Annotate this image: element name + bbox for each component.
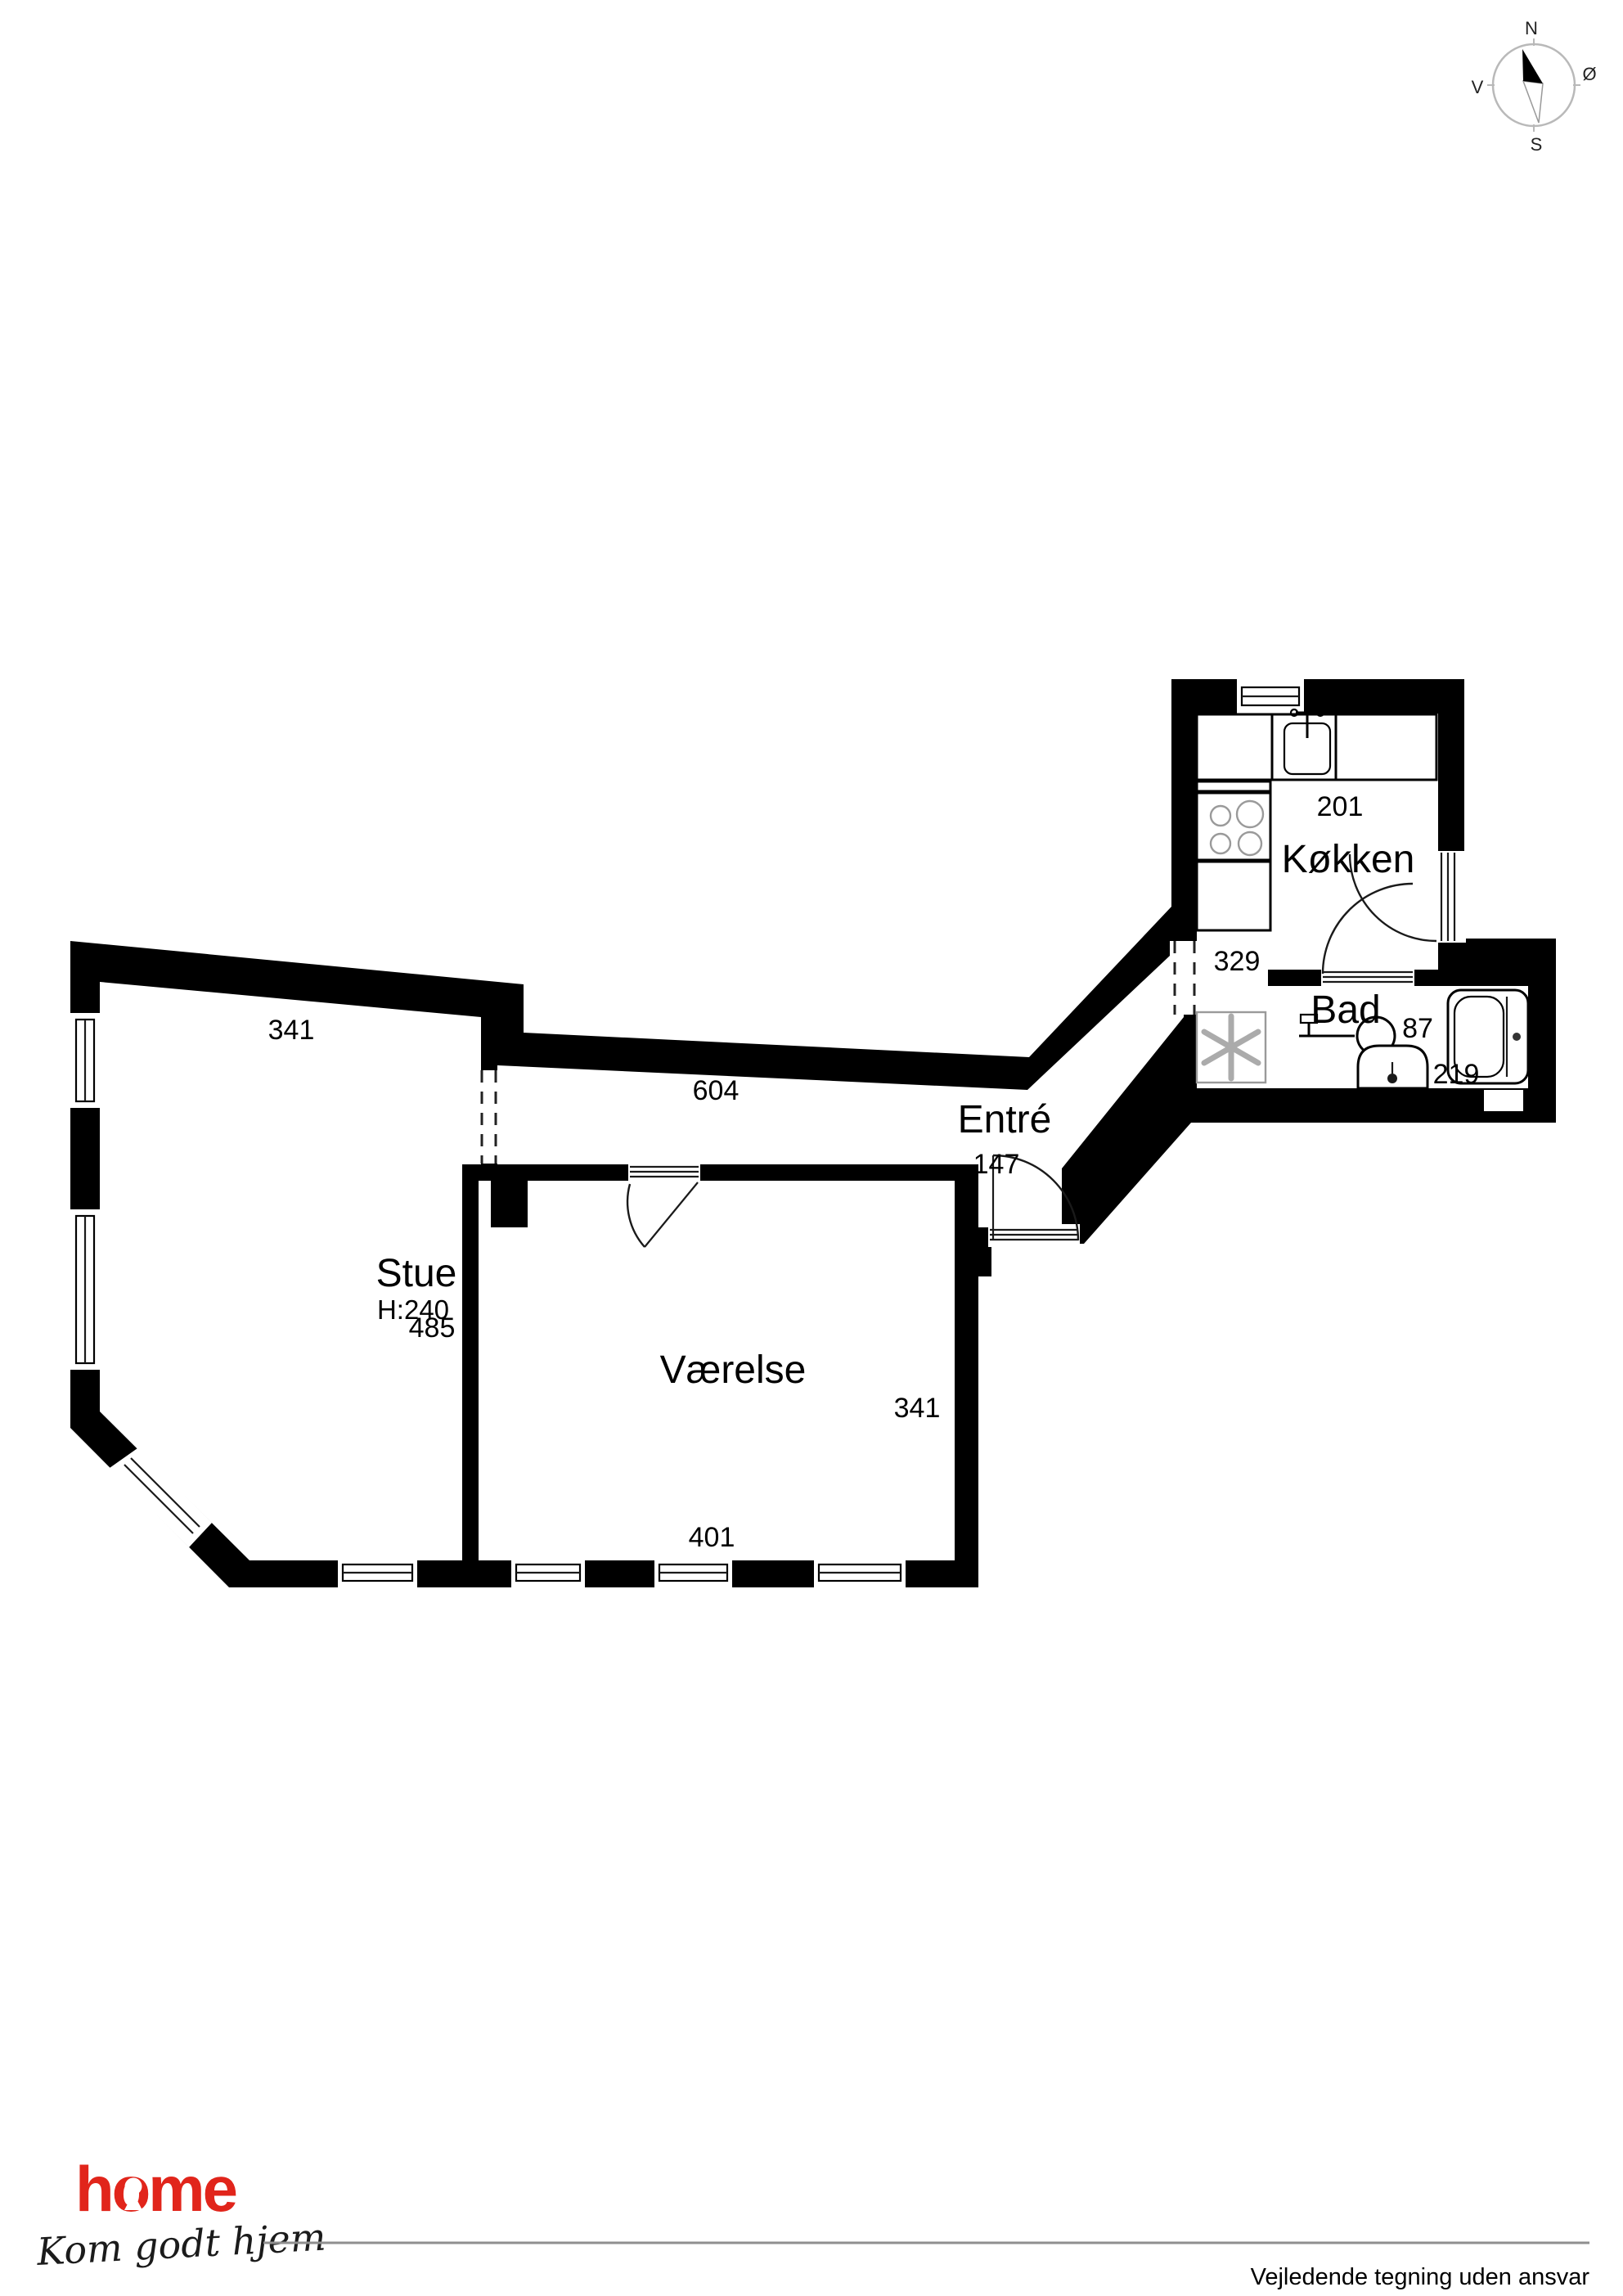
shower	[1197, 1012, 1266, 1083]
floor-plan-page: N Ø S V	[0, 0, 1623, 2296]
home-logo: home	[75, 2153, 236, 2225]
branding: home Kom godt hjem	[35, 2153, 327, 2274]
kitchen-counter-lower	[1197, 862, 1270, 930]
floor-plan: 341 Stue H:240 485 604 Værelse 341 401 E…	[69, 676, 1556, 1587]
disclaimer-text: Vejledende tegning uden ansvar	[1251, 2264, 1590, 2290]
room-label-entre: Entré	[958, 1098, 1052, 1141]
window-stue-bottom	[338, 1557, 417, 1587]
compass-label-east: Ø	[1582, 64, 1596, 84]
compass-label-north: N	[1525, 18, 1538, 38]
compass-needle-icon	[1522, 49, 1543, 83]
footer: Vejledende tegning uden ansvar	[263, 2243, 1589, 2290]
compass-label-west: V	[1472, 77, 1484, 97]
toilet	[1358, 1046, 1427, 1088]
dim-vaerelse-right: 341	[894, 1393, 941, 1424]
window-stue-left-2	[69, 1209, 101, 1370]
logo-keyhole-icon	[125, 2178, 142, 2195]
entrance-step-wall	[971, 1244, 991, 1276]
room-label-stue: Stue	[376, 1252, 457, 1295]
dim-koekken-left: 329	[1214, 946, 1261, 977]
dim-hall: 604	[693, 1075, 740, 1106]
wall-pier	[491, 1181, 528, 1227]
toilet-icon	[1387, 1074, 1397, 1083]
room-label-koekken: Køkken	[1282, 838, 1415, 881]
dim-bad-length: 219	[1433, 1059, 1480, 1090]
window-vaerelse-bottom-1	[511, 1557, 585, 1587]
dim-bad-width: 87	[1402, 1013, 1433, 1044]
dim-vaerelse-bottom: 401	[689, 1522, 735, 1553]
compass-label-south: S	[1531, 134, 1543, 155]
room-label-bad: Bad	[1311, 988, 1380, 1032]
opening-koekken-hall	[1170, 941, 1198, 1015]
compass-needle-tail	[1523, 81, 1543, 123]
kitchen-shelf	[1197, 781, 1270, 791]
window-vaerelse-bottom-3	[814, 1557, 906, 1587]
bathtub-drain-icon	[1513, 1033, 1521, 1041]
dim-koekken-top: 201	[1317, 791, 1364, 822]
dim-stue-top: 341	[268, 1015, 315, 1046]
bath-shelf	[1484, 1090, 1523, 1111]
window-vaerelse-bottom-2	[654, 1557, 732, 1587]
dim-stue-right: 485	[409, 1312, 456, 1344]
window-stue-left-1	[69, 1013, 101, 1108]
opening-stue-hall	[478, 1070, 499, 1164]
compass-rose: N Ø S V	[1472, 18, 1597, 155]
room-label-vaerelse: Værelse	[660, 1348, 807, 1392]
dim-entre: 147	[973, 1149, 1020, 1180]
